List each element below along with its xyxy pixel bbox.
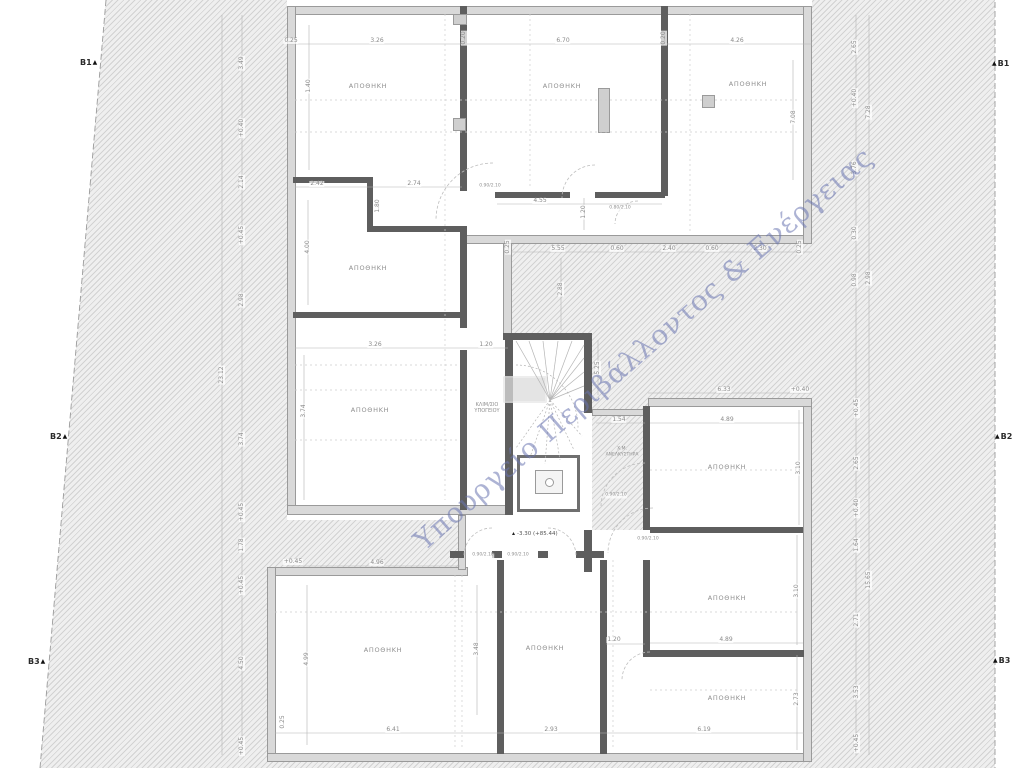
dimension-label: 2.65 xyxy=(854,455,860,470)
dimension-label: 3.49 xyxy=(239,55,245,70)
room-label-storage: ΑΠΟΘΗΚΗ xyxy=(729,80,768,88)
dimension-label: 2.14 xyxy=(239,174,245,189)
dimension-label: 3.26 xyxy=(367,342,382,348)
dimension-label: 4.89 xyxy=(718,637,733,643)
entry-wall-stub xyxy=(576,551,604,558)
stair-label-line2: ΥΠΟΓΕΙΟΥ xyxy=(474,408,499,414)
dimension-label: 4.99 xyxy=(304,651,310,666)
marker-triangle-icon: ▲ xyxy=(41,658,46,665)
wall-lower-left xyxy=(267,567,276,762)
partition xyxy=(497,560,504,754)
partition xyxy=(293,177,373,183)
dimension-label: +0.45 xyxy=(854,733,860,753)
dimension-label: 0.25 xyxy=(280,714,286,729)
dimension-label: 2.98 xyxy=(866,270,872,285)
section-marker-b2-left: B2▲ xyxy=(50,432,67,441)
door-tag: 0.90/2.10 xyxy=(479,185,501,190)
partition xyxy=(293,312,465,318)
room-label-storage: ΑΠΟΘΗΚΗ xyxy=(349,82,388,90)
marker-text: B3 xyxy=(28,657,40,666)
dimension-label: 4.89 xyxy=(719,417,734,423)
level-arrow-icon: ▴ xyxy=(512,530,515,537)
level-value: -3.30 (+85.44) xyxy=(517,531,558,537)
dimension-label: 0.20 xyxy=(461,30,467,45)
dimension-label: 1.20 xyxy=(478,342,493,348)
dimension-label: 0.60 xyxy=(609,246,624,252)
dimension-label: +0.45 xyxy=(239,575,245,595)
column xyxy=(702,95,715,108)
partition xyxy=(643,406,650,530)
partition xyxy=(367,177,373,232)
dimension-label: +0.45 xyxy=(239,502,245,522)
dimension-label: 0.60 xyxy=(704,246,719,252)
dimension-label: 2.40 xyxy=(661,246,676,252)
dimension-label: 1.80 xyxy=(375,198,381,213)
entry-wall-stub xyxy=(450,551,464,558)
dimension-label: +0.45 xyxy=(854,398,860,418)
dimension-label: 3.26 xyxy=(369,38,384,44)
dimension-label: 2.93 xyxy=(543,727,558,733)
room-label-storage: ΑΠΟΘΗΚΗ xyxy=(349,264,388,272)
dimension-label: 4.96 xyxy=(369,560,384,566)
dimension-label: 2.65 xyxy=(852,39,858,54)
door-tag: 0.90/2.10 xyxy=(507,554,529,559)
dimension-label: 1.54 xyxy=(611,417,626,423)
marker-triangle-icon: ▲ xyxy=(93,59,98,66)
dimension-label: 4.55 xyxy=(532,198,547,204)
dimension-label: 3.48 xyxy=(474,641,480,656)
dimension-label: +0.40 xyxy=(239,118,245,138)
dimension-label: 7.08 xyxy=(791,109,797,124)
dimension-label: 6.70 xyxy=(555,38,570,44)
dimension-label: +0.40 xyxy=(854,498,860,518)
faded-stamp xyxy=(503,376,547,403)
section-marker-b1-left: B1▲ xyxy=(80,58,97,67)
dimension-label: 2.88 xyxy=(558,281,564,296)
stair-wall-top xyxy=(503,333,592,340)
wall-left-wing-left xyxy=(287,6,296,515)
dimension-label: 7.28 xyxy=(866,104,872,119)
partition xyxy=(650,527,803,533)
elevator-label-line2: ΑΝΕΛΚΥΣΤΗΡΑ xyxy=(606,452,639,458)
dimension-label: 1.64 xyxy=(854,537,860,552)
dimension-label: 1.20 xyxy=(581,204,587,219)
section-marker-b3-right: ▲B3 xyxy=(993,656,1010,665)
wall-lower-bottom xyxy=(267,753,812,762)
partition xyxy=(595,192,665,198)
dimension-label: 2.98 xyxy=(239,292,245,307)
entry-wall-stub xyxy=(538,551,548,558)
wall-lower-top-left xyxy=(267,567,468,576)
dimension-label: 3.74 xyxy=(239,431,245,446)
dimension-label: 2.42 xyxy=(309,181,324,187)
dimension-label: 1.20 xyxy=(606,637,621,643)
room-label-storage: ΑΠΟΘΗΚΗ xyxy=(364,646,403,654)
partition xyxy=(643,650,804,657)
door-tag: 0.80/2.10 xyxy=(609,207,631,212)
dimension-label: 0.20 xyxy=(661,30,667,45)
dimension-label: 15.65 xyxy=(866,570,872,589)
section-marker-b3-left: B3▲ xyxy=(28,657,45,666)
dimension-label: +0.40 xyxy=(852,88,858,108)
dimension-label: 6.19 xyxy=(696,727,711,733)
room-label-storage: ΑΠΟΘΗΚΗ xyxy=(543,82,582,90)
marker-text: B3 xyxy=(999,656,1011,665)
elevator-motor xyxy=(545,478,554,487)
dimension-label: 2.73 xyxy=(794,691,800,706)
section-marker-b1-right: ▲B1 xyxy=(992,59,1009,68)
dimension-label: 23.12 xyxy=(219,365,225,384)
wall-lower-right-top xyxy=(648,398,812,407)
dimension-label: +0.45 xyxy=(239,736,245,756)
dimension-label: 3.74 xyxy=(301,403,307,418)
dimension-label: 4.50 xyxy=(239,655,245,670)
marker-triangle-icon: ▲ xyxy=(63,433,68,440)
dimension-label: 0.30 xyxy=(852,225,858,240)
section-marker-b2-right: ▲B2 xyxy=(995,432,1012,441)
dimension-label: 0.25 xyxy=(283,38,298,44)
marker-text: B1 xyxy=(80,58,92,67)
door-tag: 0.90/2.10 xyxy=(637,538,659,543)
room-label-basement-stair: ΚΛΙΜ/ΣΙΟ ΥΠΟΓΕΙΟΥ xyxy=(474,402,499,415)
marker-text: B2 xyxy=(50,432,62,441)
wall-corridor-courtyard xyxy=(503,243,512,340)
partition xyxy=(600,560,607,754)
marker-triangle-icon: ▲ xyxy=(995,433,1000,440)
door-tag: 0.90/2.10 xyxy=(605,494,627,499)
room-label-elevator-machine: Χ.Μ. ΑΝΕΛΚΥΣΤΗΡΑ xyxy=(606,446,639,457)
dimension-label: 6.41 xyxy=(385,727,400,733)
level-marker: ▴ -3.30 (+85.44) xyxy=(512,530,558,537)
room-label-storage: ΑΠΟΘΗΚΗ xyxy=(351,406,390,414)
wall-top xyxy=(287,6,812,15)
marker-text: B2 xyxy=(1001,432,1013,441)
dimension-label: 3.10 xyxy=(796,460,802,475)
dimension-label: +0.40 xyxy=(790,387,810,393)
partition xyxy=(367,226,467,232)
room-label-storage: ΑΠΟΘΗΚΗ xyxy=(708,594,747,602)
dimension-label: 2.74 xyxy=(406,181,421,187)
partition xyxy=(643,560,650,652)
dimension-label: 4.00 xyxy=(305,239,311,254)
column xyxy=(598,88,610,133)
marker-triangle-icon: ▲ xyxy=(992,60,997,67)
dimension-label: 0.25 xyxy=(505,239,511,254)
dimension-label: 5.55 xyxy=(550,246,565,252)
marker-triangle-icon: ▲ xyxy=(993,657,998,664)
wall-lower-right xyxy=(803,398,812,762)
floor-plan-drawing: ΑΠΟΘΗΚΗ ΑΠΟΘΗΚΗ ΑΠΟΘΗΚΗ ΑΠΟΘΗΚΗ ΑΠΟΘΗΚΗ … xyxy=(0,0,1024,768)
dimension-label: 1.40 xyxy=(306,78,312,93)
dimension-label: +0.45 xyxy=(239,225,245,245)
door-tag: 0.90/2.10 xyxy=(472,554,494,559)
column xyxy=(453,118,466,131)
dimension-label: 1.78 xyxy=(239,537,245,552)
dimension-label: 4.26 xyxy=(729,38,744,44)
column xyxy=(453,14,467,25)
dimension-label: 6.33 xyxy=(716,387,731,393)
dimension-label: 0.25 xyxy=(797,239,803,254)
marker-text: B1 xyxy=(998,59,1010,68)
room-label-storage: ΑΠΟΘΗΚΗ xyxy=(708,463,747,471)
room-label-storage: ΑΠΟΘΗΚΗ xyxy=(708,694,747,702)
dimension-label: 3.53 xyxy=(854,684,860,699)
wall-machine-room-top xyxy=(592,409,648,416)
dimension-label: 3.10 xyxy=(794,583,800,598)
dimension-label: 2.71 xyxy=(854,612,860,627)
dimension-label: +0.45 xyxy=(283,559,303,565)
room-label-storage: ΑΠΟΘΗΚΗ xyxy=(526,644,565,652)
dimension-label: 0.98 xyxy=(852,272,858,287)
